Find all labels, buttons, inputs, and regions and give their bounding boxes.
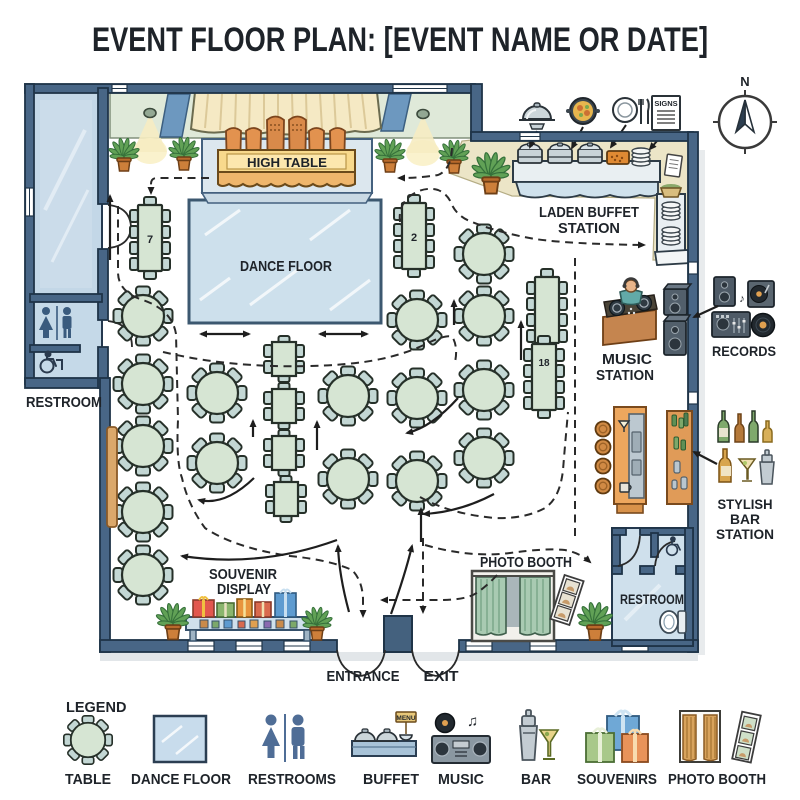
svg-text:PHOTO BOOTH: PHOTO BOOTH <box>480 555 572 571</box>
svg-text:MUSIC: MUSIC <box>438 771 484 788</box>
svg-text:LEGEND: LEGEND <box>66 700 126 716</box>
svg-text:EVENT FLOOR PLAN: [EVENT NAME: EVENT FLOOR PLAN: [EVENT NAME OR DATE] <box>92 21 708 59</box>
svg-text:STATION: STATION <box>596 368 654 384</box>
svg-text:RESTROOMS: RESTROOMS <box>248 771 336 788</box>
svg-text:DANCE FLOOR: DANCE FLOOR <box>131 771 231 788</box>
svg-text:LADEN BUFFET: LADEN BUFFET <box>539 204 639 221</box>
svg-text:TABLE: TABLE <box>65 771 111 788</box>
svg-text:BAR: BAR <box>730 511 760 527</box>
svg-text:STYLISH: STYLISH <box>718 496 773 512</box>
svg-text:7: 7 <box>147 234 153 246</box>
svg-text:STATION: STATION <box>558 220 620 237</box>
svg-text:EXIT: EXIT <box>424 669 459 685</box>
svg-text:BAR: BAR <box>521 771 551 788</box>
svg-text:SOUVENIRS: SOUVENIRS <box>577 771 657 788</box>
svg-text:MENU: MENU <box>396 715 415 722</box>
svg-text:RECORDS: RECORDS <box>712 343 776 359</box>
svg-text:RESTROOM: RESTROOM <box>26 394 102 411</box>
svg-text:RESTROOM: RESTROOM <box>620 592 684 607</box>
svg-text:2: 2 <box>411 232 417 244</box>
svg-text:STATION: STATION <box>716 526 774 542</box>
svg-text:BUFFET: BUFFET <box>363 771 419 788</box>
svg-text:SOUVENIR: SOUVENIR <box>209 567 277 583</box>
svg-text:18: 18 <box>538 358 550 369</box>
svg-text:♪: ♪ <box>739 293 745 305</box>
svg-text:ENTRANCE: ENTRANCE <box>327 669 400 685</box>
svg-text:N: N <box>740 74 749 89</box>
svg-text:DISPLAY: DISPLAY <box>217 582 271 598</box>
svg-text:DANCE FLOOR: DANCE FLOOR <box>240 258 332 275</box>
svg-text:SIGNS: SIGNS <box>654 99 677 108</box>
svg-text:♫: ♫ <box>467 713 478 730</box>
svg-text:PHOTO BOOTH: PHOTO BOOTH <box>668 771 766 788</box>
svg-text:HIGH TABLE: HIGH TABLE <box>247 155 327 170</box>
svg-text:MUSIC: MUSIC <box>602 352 653 368</box>
